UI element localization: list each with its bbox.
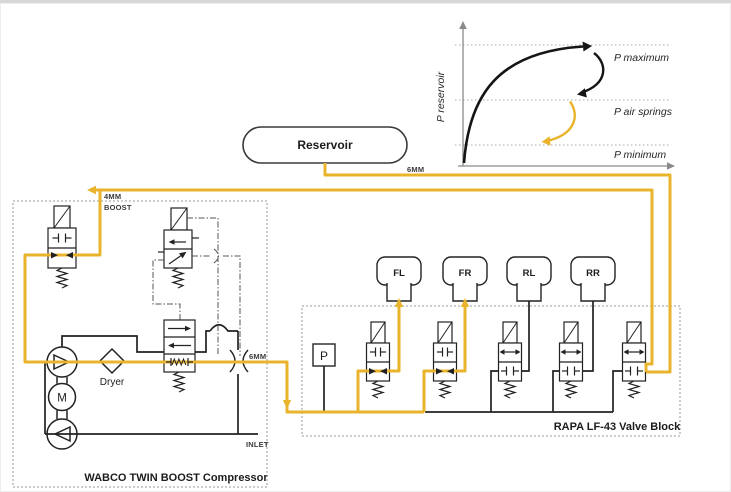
p-air-springs-label: P air springs [614,106,673,118]
boost-valve [48,206,76,288]
charge-curve [464,47,583,164]
outlet-6mm-label: 6MM [249,352,266,361]
pneumatic-schematic: P maximum P air springs P minimum P rese… [0,0,731,492]
x-axis-arrow-icon [667,162,675,170]
inlet-label: INLET [246,440,269,449]
dryer-label: Dryer [100,377,125,388]
supply-6mm-label: 6MM [407,165,424,174]
valve-fl [367,322,390,398]
boost-arrow-icon [87,186,96,194]
boost-label: BOOST [104,203,132,212]
deflate-arrow [549,102,575,141]
valve-supply [623,322,646,398]
charge-curve-arrow-icon [583,42,593,52]
compressor-line [25,190,424,412]
air-spring-fr [443,257,487,301]
boost-4mm-label: 4MM [104,192,121,201]
valve-fr [434,322,457,398]
valve-rr [560,322,583,398]
valve-rl [499,322,522,398]
p-minimum-label: P minimum [614,149,666,161]
pressure-sensor-label: P [320,349,328,363]
motor-label: M [57,393,67,405]
governor-valve [164,320,195,392]
air-spring-rr-label: RR [586,268,600,279]
p-maximum-label: P maximum [614,52,669,64]
air-spring-fl-label: FL [393,268,405,279]
valve-block-title: RAPA LF-43 Valve Block [554,421,681,433]
compressor-title: WABCO TWIN BOOST Compressor [84,472,268,484]
air-spring-rl [507,257,551,301]
air-spring-rr [571,257,615,301]
compressor-unit [13,201,267,487]
air-spring-rl-label: RL [523,268,536,279]
deflate-arrow-head-icon [542,136,551,145]
reservoir-label: Reservoir [297,138,353,152]
window-top-edge [0,0,731,4]
drop-arrow-head-icon [577,88,587,97]
air-spring-fr-label: FR [459,268,472,279]
graph-axes [458,21,675,170]
compressor-plumbing [45,325,258,434]
unloader-valve [158,208,199,288]
y-axis-label: P reservoir [435,71,447,122]
window-border [1,4,731,492]
y-axis-arrow-icon [459,21,467,29]
reservoir: Reservoir [243,127,407,163]
drop-to-airsprings-arrow [582,53,603,93]
pressure-graph: P maximum P air springs P minimum P rese… [435,21,675,170]
air-spring-fl [377,257,421,301]
manifold-arrow-icon [283,400,291,409]
